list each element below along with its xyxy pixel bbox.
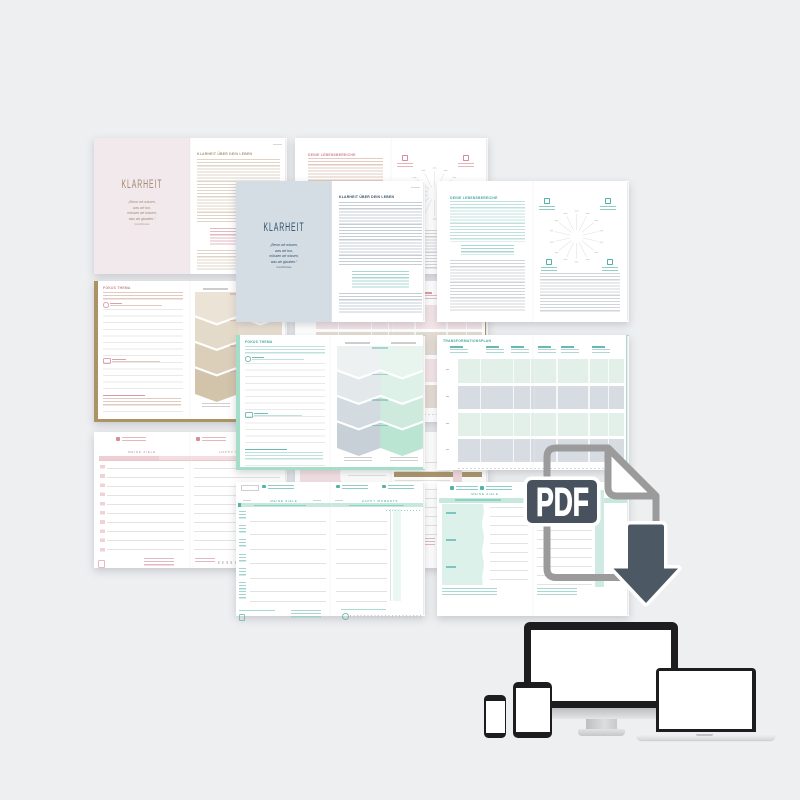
svg-text:PDF: PDF [536,480,589,525]
